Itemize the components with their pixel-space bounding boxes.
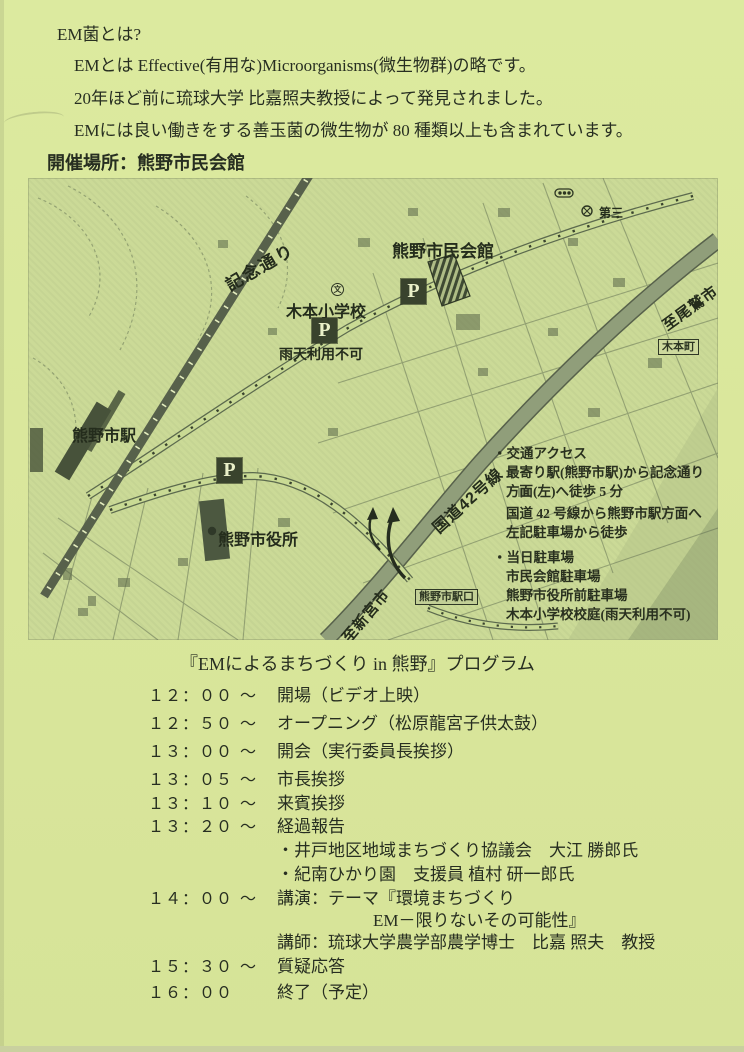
program-subrow: ・紀南ひかり園 支援員 植村 研一郎氏	[277, 860, 575, 885]
access-line: 木本小学校校庭(雨天利用不可)	[506, 605, 718, 624]
program-text: 質疑応答	[277, 957, 345, 976]
scan-edge-left	[0, 0, 4, 1052]
program-tilde: ～	[240, 738, 277, 762]
intro-heading: EM菌とは?	[57, 20, 141, 45]
program-text: 開会（実行委員長挨拶）	[277, 742, 464, 761]
program-tilde: ～	[240, 790, 277, 814]
program-row: １６：００終了（予定）	[148, 978, 379, 1003]
program-text: 来賓挨拶	[277, 794, 345, 813]
program-text: ・紀南ひかり園 支援員 植村 研一郎氏	[277, 865, 575, 884]
program-subrow: 講師：琉球大学農学部農学博士 比嘉 照夫 教授	[277, 928, 655, 953]
access-line: 最寄り駅(熊野市駅)から記念通り	[506, 463, 718, 482]
intro-line-1: EMとは Effective(有用な)Microorganisms(微生物群)の…	[74, 51, 536, 76]
access-line: 左記駐車場から徒歩	[506, 523, 718, 542]
program-time: １３：１０	[148, 790, 240, 814]
traffic-signal-icon	[555, 189, 573, 197]
program-title: 『EMによるまちづくり in 熊野』プログラム	[180, 650, 535, 676]
city-hall-label: 熊野市役所	[218, 526, 298, 550]
program-text: 終了（予定）	[277, 983, 379, 1002]
parking-icon-cityhall: P	[217, 458, 242, 483]
program-time: １２：５０	[148, 710, 240, 734]
program-time: １４：００	[148, 885, 240, 909]
venue-line: 開催場所：熊野市民会館	[47, 149, 245, 175]
intro-line-3: EMには良い働きをする善玉菌の微生物が 80 種類以上も含まれています。	[74, 116, 633, 141]
program-text: オープニング（松原龍宮子供太鼓）	[277, 714, 548, 733]
program-tilde: ～	[240, 710, 277, 734]
location-map: 記念通り 文 木本小学校 P 雨天利用不可 熊野市民会館 P 第三 至尾鷲市 木…	[28, 178, 718, 640]
station-entrance-label: 熊野市駅口	[415, 589, 478, 605]
daisan-label: 第三	[599, 204, 623, 221]
daisan-school-symbol-icon	[582, 206, 592, 216]
program-time: １３：２０	[148, 813, 240, 837]
program-text: ・井戸地区地域まちづくり協議会 大江 勝郎氏	[277, 841, 638, 860]
program-text: 経過報告	[277, 817, 345, 836]
rain-note-label: 雨天利用不可	[279, 344, 363, 364]
program-tilde: ～	[240, 766, 277, 790]
access-line: ・当日駐車場	[506, 548, 718, 567]
access-line: 市民会館駐車場	[506, 567, 718, 586]
program-subrow: ・井戸地区地域まちづくり協議会 大江 勝郎氏	[277, 836, 638, 861]
program-row: １５：３０～質疑応答	[148, 952, 345, 977]
kumano-station-label: 熊野市駅	[72, 422, 136, 446]
program-tilde: ～	[240, 953, 277, 977]
program-row: １３：２０～経過報告	[148, 812, 345, 837]
program-text: 市長挨拶	[277, 770, 345, 789]
parking-icon-school: P	[312, 318, 337, 343]
program-row: １３：１０～来賓挨拶	[148, 789, 345, 814]
program-text: 開場（ビデオ上映）	[277, 686, 430, 705]
program-time: １３：０５	[148, 766, 240, 790]
program-tilde: ～	[240, 813, 277, 837]
scan-edge-bottom	[0, 1046, 744, 1052]
parking-icon-civic-hall: P	[401, 279, 426, 304]
pencil-scribble	[3, 109, 64, 131]
program-row: １２：００～開場（ビデオ上映）	[148, 681, 430, 706]
program-section: 『EMによるまちづくり in 熊野』プログラム １２：００～開場（ビデオ上映） …	[0, 648, 744, 1052]
program-time: １２：００	[148, 682, 240, 706]
intro-line-2: 20年ほど前に琉球大学 比嘉照夫教授によって発見されました。	[74, 84, 553, 109]
program-tilde: ～	[240, 682, 277, 706]
program-row: １３：００～開会（実行委員長挨拶）	[148, 737, 464, 762]
access-info: ・交通アクセス 最寄り駅(熊野市駅)から記念通り 方面(左)へ徒歩 5 分 国道…	[506, 444, 718, 624]
access-line: 熊野市役所前駐車場	[506, 586, 718, 605]
program-time: １３：００	[148, 738, 240, 762]
school-symbol-icon: 文	[331, 283, 344, 296]
program-row: １３：０５～市長挨拶	[148, 765, 345, 790]
scanned-flyer-page: EM菌とは? EMとは Effective(有用な)Microorganisms…	[0, 0, 744, 1052]
access-line: 方面(左)へ徒歩 5 分	[506, 482, 718, 501]
program-row: １２：５０～オープニング（松原龍宮子供太鼓）	[148, 709, 548, 734]
civic-hall-label: 熊野市民会館	[392, 237, 494, 262]
program-tilde: ～	[240, 885, 277, 909]
kimoto-cho-label: 木本町	[658, 339, 699, 355]
program-text: 講師：琉球大学農学部農学博士 比嘉 照夫 教授	[277, 933, 655, 952]
access-line: 国道 42 号線から熊野市駅方面へ	[506, 504, 718, 523]
program-time: １５：３０	[148, 953, 240, 977]
program-time: １６：００	[148, 979, 240, 1003]
access-line: ・交通アクセス	[506, 444, 718, 463]
